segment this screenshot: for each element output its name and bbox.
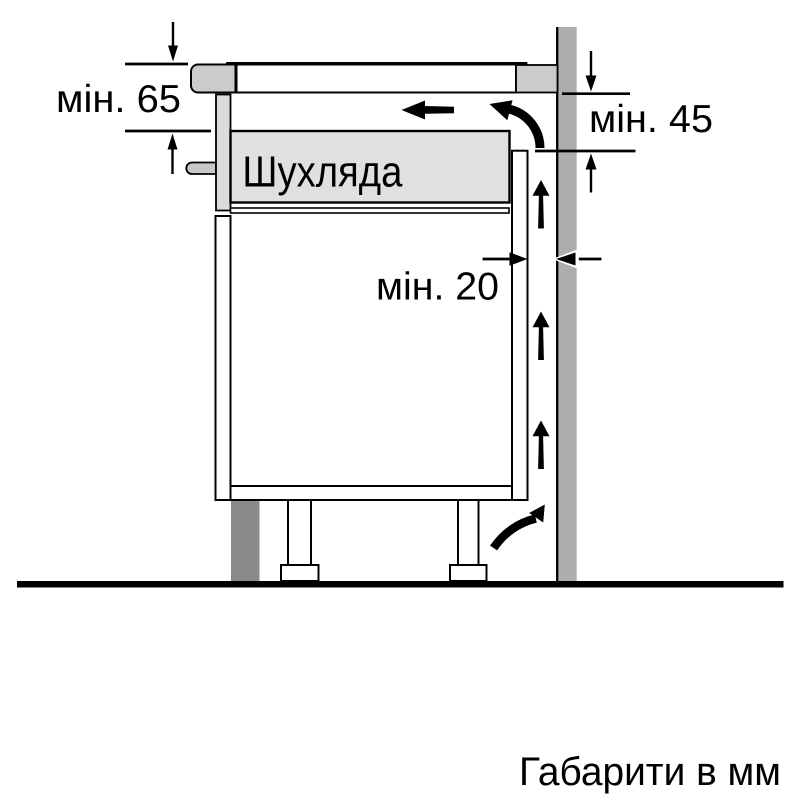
svg-text:мін. 65: мін. 65	[56, 78, 181, 121]
svg-text:мін. 20: мін. 20	[376, 266, 499, 309]
svg-text:Шухляда: Шухляда	[242, 148, 402, 197]
svg-text:Габарити в мм: Габарити в мм	[519, 750, 781, 794]
svg-text:мін. 45: мін. 45	[589, 98, 713, 141]
